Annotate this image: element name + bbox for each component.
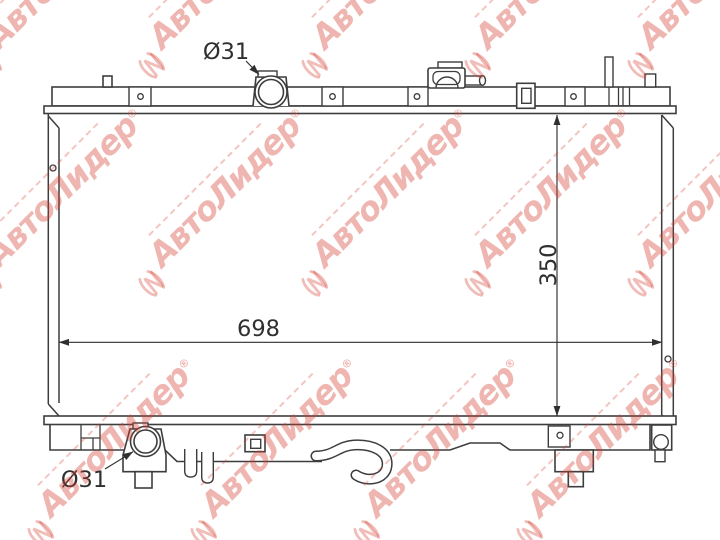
label-top-diameter: Ø31 — [203, 39, 259, 75]
bottom-mount-bracket — [548, 426, 570, 447]
dimension-height-label: 350 — [536, 244, 562, 287]
right-side-plate — [662, 115, 674, 420]
mount-pin — [645, 74, 656, 87]
dimension-width: 698 — [59, 316, 662, 342]
top-mount-bracket — [322, 87, 343, 106]
left-side-plate — [48, 114, 59, 417]
top-mount-bracket — [129, 87, 151, 106]
inlet-pipe — [428, 62, 486, 88]
tank-end-cell — [81, 425, 100, 451]
lower-hose — [316, 445, 387, 479]
square-bracket-top — [517, 83, 535, 108]
dimension-width-label: 698 — [237, 316, 280, 342]
bottom-mount-foot — [555, 450, 593, 487]
bottom-diameter-label: Ø31 — [61, 467, 107, 493]
mount-pin — [605, 57, 613, 87]
outlet-pipe — [123, 423, 166, 488]
drain-nipples — [185, 449, 214, 483]
top-mount-bracket — [408, 87, 428, 106]
square-bracket-bottom — [245, 435, 265, 452]
dimension-height: 350 — [536, 115, 562, 416]
bottom-end-bracket — [652, 425, 672, 462]
filler-neck — [253, 71, 289, 108]
top-tank — [44, 57, 676, 114]
top-mount-bracket — [565, 87, 585, 106]
radiator-diagram-page: 698 350 Ø31 Ø31 АвтоЛидер®АвтоЛидер®Авто… — [0, 0, 720, 540]
top-diameter-label: Ø31 — [203, 39, 249, 65]
label-bottom-diameter: Ø31 — [61, 452, 133, 493]
radiator-line-drawing: 698 350 Ø31 Ø31 — [0, 0, 720, 540]
